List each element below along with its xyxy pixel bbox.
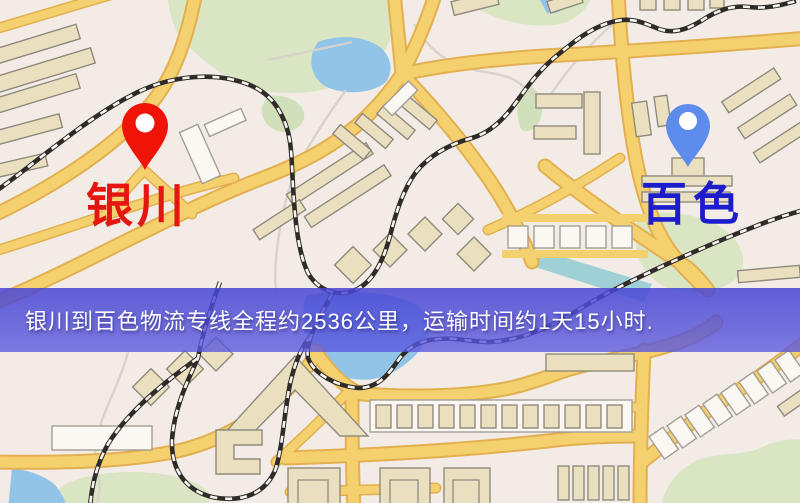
destination-city-label: 百色 (641, 179, 745, 230)
origin-pin (122, 103, 168, 170)
map-canvas: 银川 百色 (0, 0, 800, 503)
route-info-banner: 银川到百色物流专线全程约2536公里，运输时间约1天15小时. (0, 288, 800, 352)
park-area (54, 472, 210, 503)
route-info-text: 银川到百色物流专线全程约2536公里，运输时间约1天15小时. (25, 304, 654, 336)
origin-pin-body (122, 103, 168, 170)
origin-pin-hole (136, 114, 155, 133)
logistics-route-map: 银川 百色 银川到百色物流专线全程约2536公里，运输时间约1天15小时. (0, 0, 800, 503)
river (8, 468, 68, 503)
origin-city-label: 银川 (86, 181, 188, 233)
park-area (660, 439, 800, 503)
destination-pin-hole (679, 112, 697, 130)
